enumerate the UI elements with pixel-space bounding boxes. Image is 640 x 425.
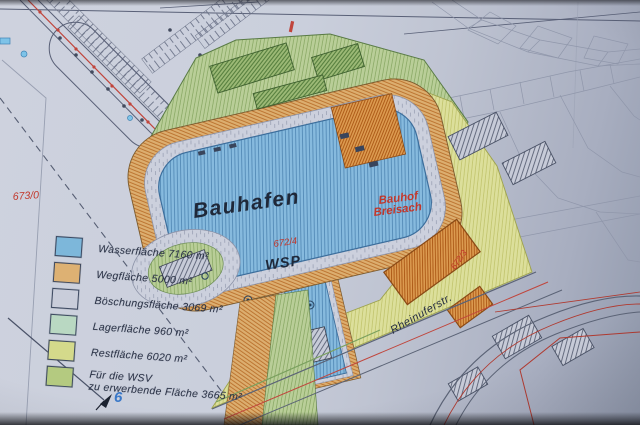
harbor-ramp: [331, 94, 405, 168]
map-photo: Bauhafen WSP 672/4 Bauhof Breisach 672/3…: [0, 0, 640, 425]
legend-swatch-rest: [47, 340, 75, 362]
legend-swatch-water: [55, 236, 83, 258]
legend-label-lager: Lagerfläche 960 m²: [92, 321, 188, 340]
label-parcel-673-0: 673/0: [12, 189, 39, 203]
legend-label-rest: Restfläche 6020 m²: [91, 347, 188, 366]
legend-swatch-wsv: [46, 366, 74, 388]
legend-swatch-weg: [53, 262, 81, 284]
legend-swatch-boeschung: [51, 288, 79, 310]
legend-swatch-lager: [49, 314, 77, 336]
legend-label-boeschung: Böschungsfläche 3069 m²: [94, 295, 223, 316]
legend-label-wsv: Für die WSV zu erwerbende Fläche 3665 m²: [88, 369, 243, 404]
legend-label-wsv-line2: zu erwerbende Fläche 3665 m²: [88, 381, 242, 404]
legend: Wasserfläche 7160 m² Wegfläche 5000 m² B…: [45, 236, 252, 409]
legend-label-weg: Wegfläche 5000 m²: [96, 269, 193, 288]
legend-label-water: Wasserfläche 7160 m²: [98, 243, 209, 263]
